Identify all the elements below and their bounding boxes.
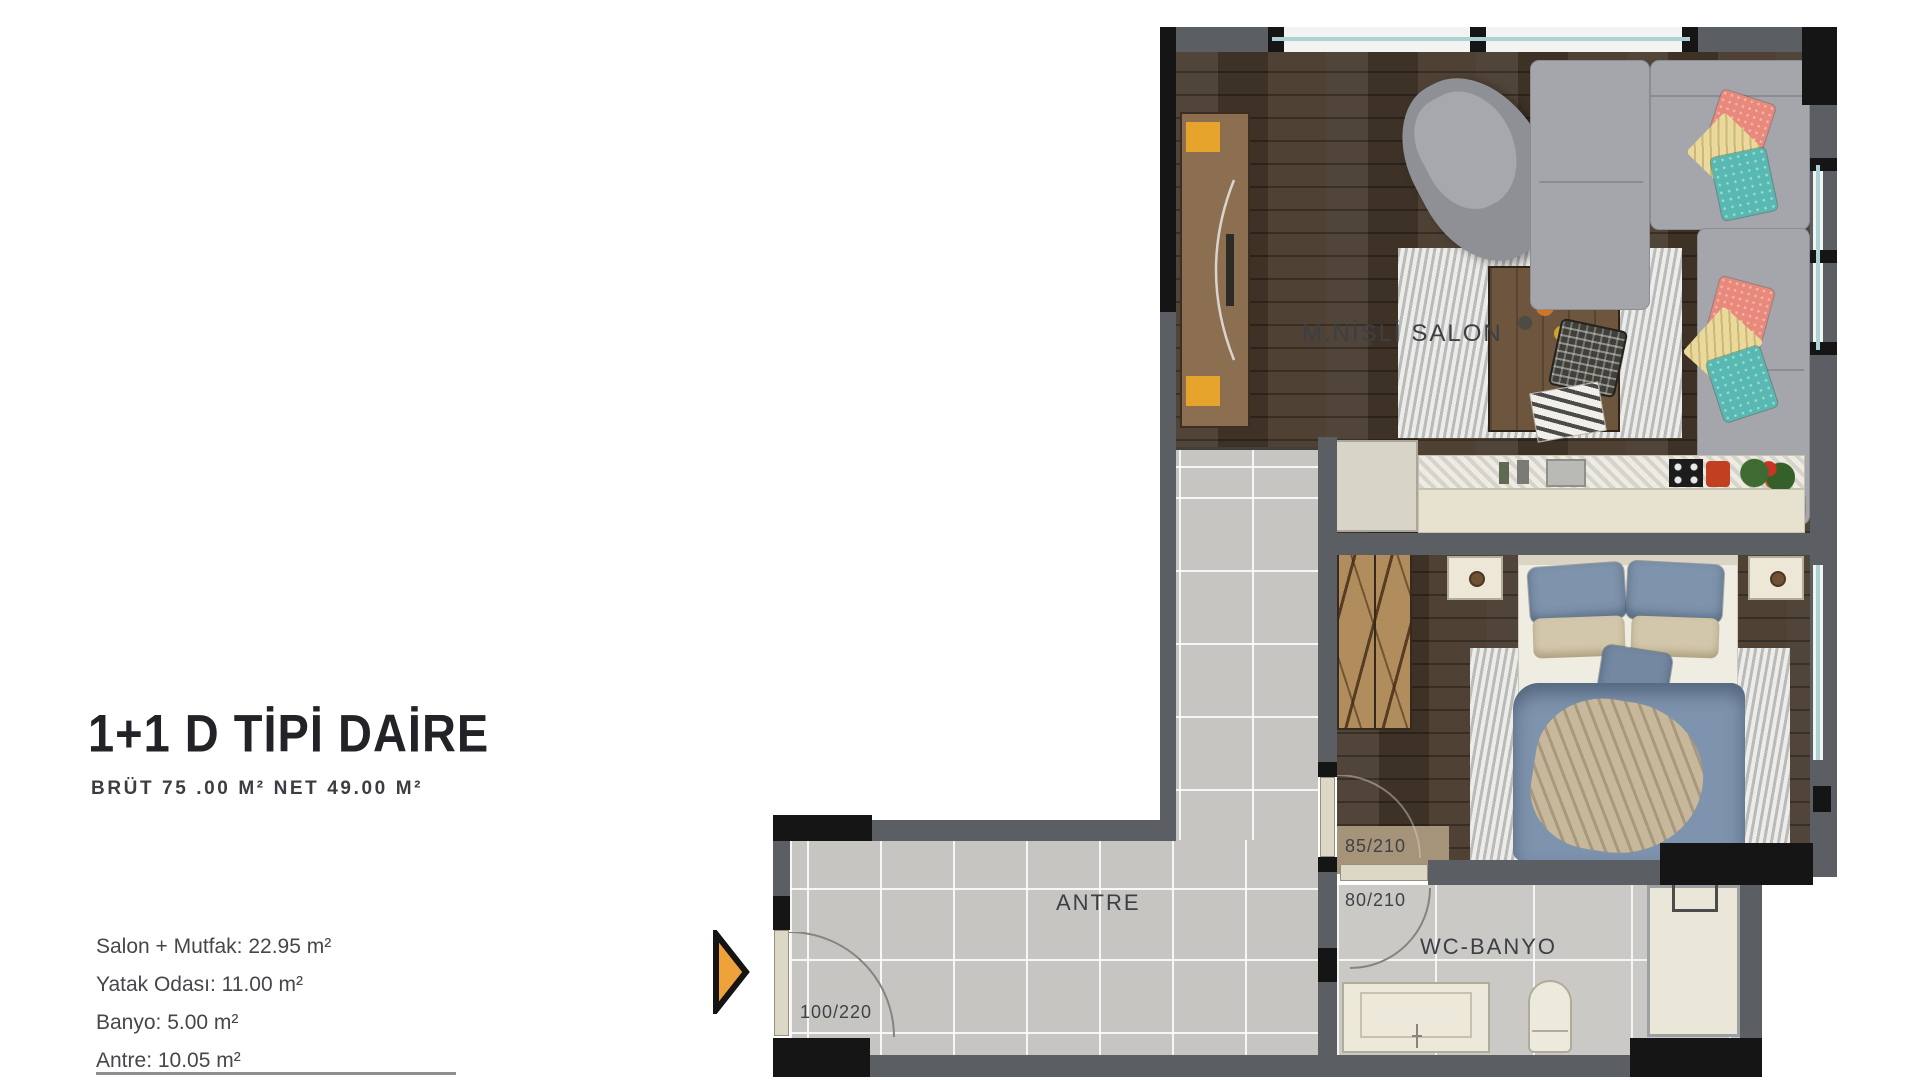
wall-segment bbox=[1176, 27, 1272, 52]
cooking-pot bbox=[1706, 461, 1730, 487]
wall-tick bbox=[1318, 857, 1337, 872]
wall-segment-black bbox=[1660, 843, 1813, 885]
window-tick bbox=[1810, 158, 1837, 171]
room-label-salon: M.NİŞLİ SALON bbox=[1302, 320, 1503, 348]
wall-tick bbox=[773, 896, 790, 930]
wall-tick bbox=[1318, 762, 1337, 777]
room-label-antre: ANTRE bbox=[1056, 890, 1141, 916]
fruit-bowl bbox=[1518, 316, 1532, 330]
room-label-bathroom: WC-BANYO bbox=[1420, 934, 1557, 960]
sofa-chaise bbox=[1530, 60, 1650, 310]
nightstand-knob bbox=[1770, 571, 1786, 587]
wall-corner-black bbox=[773, 1038, 870, 1077]
wall-segment bbox=[1740, 877, 1762, 1055]
bed-pillow bbox=[1626, 561, 1725, 624]
wall-corner-black bbox=[773, 815, 872, 841]
plant bbox=[1737, 452, 1795, 494]
toilet bbox=[1528, 980, 1572, 1053]
wall-segment bbox=[1318, 1055, 1630, 1077]
floor-threshold bbox=[1176, 447, 1318, 450]
door-size-bathroom: 80/210 bbox=[1345, 890, 1406, 911]
room-area-item: Banyo: 5.00 m² bbox=[96, 1004, 331, 1042]
tv-console bbox=[1180, 112, 1250, 428]
window-tick bbox=[1810, 250, 1837, 263]
door-pivot-mark bbox=[1813, 786, 1831, 812]
kitchen-countertop bbox=[1418, 455, 1805, 489]
divider-line bbox=[96, 1072, 456, 1075]
window-glass-line bbox=[1816, 165, 1820, 350]
entry-door-leaf bbox=[774, 930, 789, 1036]
sofa-seam bbox=[1539, 181, 1643, 183]
window-glass-line bbox=[1816, 565, 1820, 760]
bedroom-door-leaf bbox=[1320, 777, 1335, 857]
wall-segment bbox=[1428, 860, 1660, 885]
fridge bbox=[1335, 440, 1418, 532]
wall-segment bbox=[1318, 555, 1337, 762]
bed bbox=[1518, 552, 1738, 862]
faucet-icon bbox=[1412, 1024, 1422, 1048]
wall-segment bbox=[1160, 27, 1176, 312]
window-tick bbox=[1810, 342, 1837, 355]
sink-vanity bbox=[1342, 982, 1490, 1053]
window-glass-line bbox=[1272, 37, 1690, 41]
shower bbox=[1647, 885, 1740, 1037]
entry-direction-arrow-icon bbox=[712, 930, 752, 1014]
wall-corner-black bbox=[1802, 27, 1837, 105]
wall-corner-black bbox=[1630, 1038, 1762, 1077]
page-title: 1+1 D TİPİ DAİRE bbox=[88, 702, 489, 764]
wall-segment bbox=[1318, 533, 1837, 555]
wall-segment bbox=[773, 841, 790, 896]
door-size-entry: 100/220 bbox=[800, 1002, 872, 1023]
nightstand-right bbox=[1748, 556, 1804, 600]
counter-decor bbox=[1499, 462, 1509, 484]
wall-segment bbox=[1160, 312, 1176, 823]
entry-door-arc bbox=[789, 932, 899, 1042]
room-area-list: Salon + Mutfak: 22.95 m² Yatak Odası: 11… bbox=[96, 928, 331, 1080]
hall-corridor-floor bbox=[1176, 450, 1318, 846]
nightstand-left bbox=[1447, 556, 1503, 600]
wall-segment bbox=[1690, 27, 1802, 52]
wardrobe bbox=[1337, 545, 1412, 730]
wall-segment bbox=[1318, 437, 1337, 533]
bathroom-door-leaf bbox=[1340, 864, 1428, 881]
nightstand-knob bbox=[1469, 571, 1485, 587]
kitchen-counter-base bbox=[1418, 489, 1805, 533]
kitchen-sink bbox=[1546, 459, 1586, 487]
stove-icon bbox=[1669, 459, 1703, 487]
toilet-tank-line bbox=[1532, 1030, 1568, 1032]
area-subtitle: BRÜT 75 .00 M² NET 49.00 M² bbox=[91, 778, 423, 800]
tv-icon bbox=[1182, 114, 1248, 426]
room-area-item: Yatak Odası: 11.00 m² bbox=[96, 966, 331, 1004]
wardrobe-seam bbox=[1374, 547, 1376, 728]
room-area-item: Salon + Mutfak: 22.95 m² bbox=[96, 928, 331, 966]
apartment-info-panel: 1+1 D TİPİ DAİRE BRÜT 75 .00 M² NET 49.0… bbox=[0, 0, 700, 1080]
shower-door bbox=[1672, 885, 1718, 912]
wall-tick bbox=[1318, 948, 1337, 982]
counter-decor bbox=[1517, 460, 1529, 484]
door-size-bedroom: 85/210 bbox=[1345, 836, 1406, 857]
